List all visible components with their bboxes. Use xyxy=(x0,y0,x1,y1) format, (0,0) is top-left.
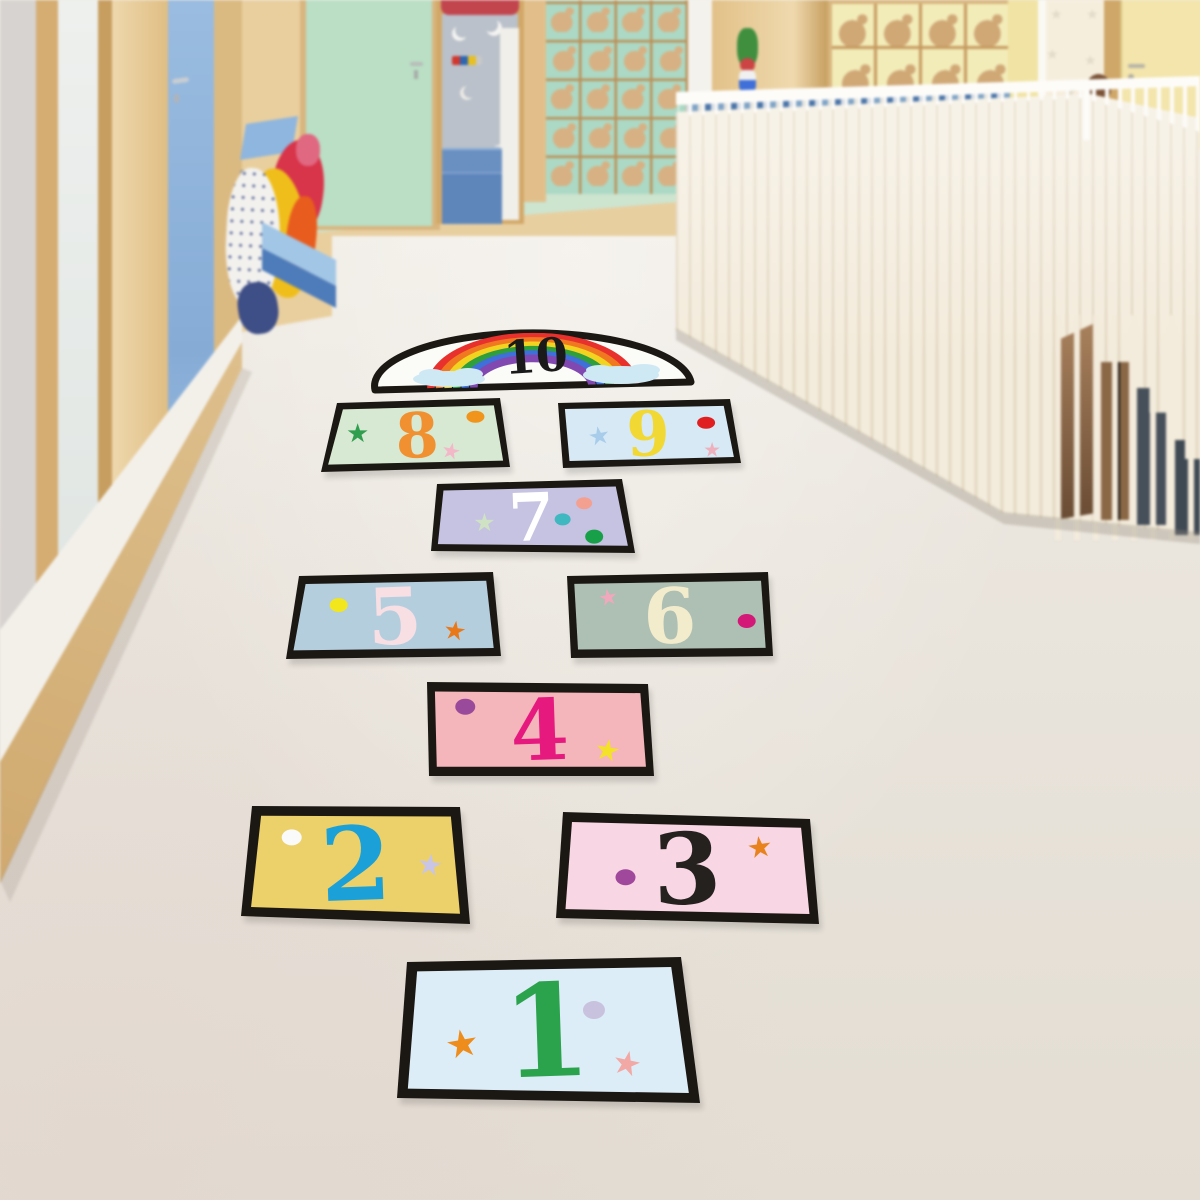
tile-number: 7 xyxy=(507,478,556,558)
tile-number: 6 xyxy=(642,571,698,662)
cloud-icon xyxy=(453,368,483,380)
tile-number: 9 xyxy=(625,397,671,471)
dot-decoration xyxy=(585,530,603,544)
star-decoration: ★ xyxy=(415,846,445,883)
tile-number: 8 xyxy=(394,399,440,473)
tile-number: 1 xyxy=(499,956,593,1109)
dot-decoration xyxy=(555,513,571,525)
kindergarten-hallway-photo: ★★★★★ xyxy=(0,0,1200,1200)
tile-number: 3 xyxy=(651,811,723,928)
star-decoration: ★ xyxy=(346,419,369,449)
star-decoration: ★ xyxy=(473,508,495,537)
hopscotch-number-stickers: ★★1★2★3★4★5★6★7★★8★★910 xyxy=(0,0,1200,1200)
cloud-icon xyxy=(628,364,660,376)
dot-decoration xyxy=(330,598,348,612)
star-decoration: ★ xyxy=(703,438,721,462)
tile-number: 5 xyxy=(366,571,423,664)
dot-decoration xyxy=(738,614,756,628)
star-decoration: ★ xyxy=(441,615,468,648)
dot-decoration xyxy=(282,829,302,845)
dot-decoration xyxy=(466,411,484,423)
dot-decoration xyxy=(697,417,715,429)
dot-decoration xyxy=(576,497,592,509)
tile-number: 10 xyxy=(502,327,570,385)
cloud-icon xyxy=(586,365,614,375)
tile-number: 2 xyxy=(318,804,393,926)
cloud-icon xyxy=(419,369,445,379)
tile-number: 4 xyxy=(509,680,571,781)
star-decoration: ★ xyxy=(744,828,774,865)
dot-decoration xyxy=(455,699,475,715)
hopscotch-tile-10-dome: 10 xyxy=(375,327,691,390)
dot-decoration xyxy=(616,869,636,885)
